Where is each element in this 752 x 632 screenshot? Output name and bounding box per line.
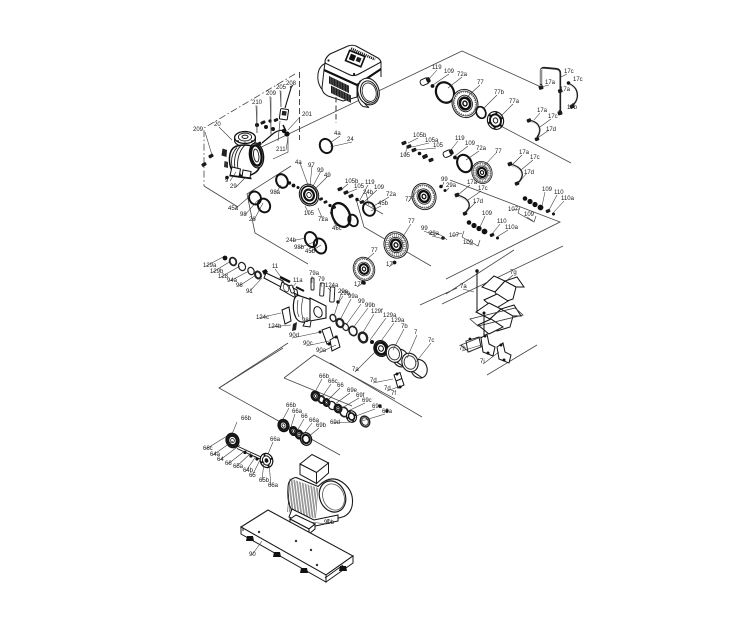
svg-text:109: 109 [482,211,493,217]
svg-text:209: 209 [266,91,277,97]
svg-text:211: 211 [276,147,286,153]
svg-text:69b: 69b [316,423,327,429]
svg-text:77: 77 [408,219,415,225]
svg-text:90d: 90d [289,333,299,339]
svg-text:77a: 77a [509,99,520,105]
svg-text:17c: 17c [530,155,540,161]
svg-text:11: 11 [272,264,279,270]
svg-text:17a: 17a [560,87,571,93]
svg-text:66: 66 [301,414,308,420]
svg-text:110a: 110a [505,225,519,231]
svg-text:90b: 90b [324,520,335,526]
svg-text:124b: 124b [268,324,282,330]
svg-text:77: 77 [495,149,502,155]
svg-text:77: 77 [371,248,378,254]
svg-text:17a: 17a [537,108,548,114]
svg-text:72a: 72a [457,72,468,78]
svg-text:66a: 66a [270,437,281,443]
svg-text:109: 109 [524,212,535,218]
svg-text:129f: 129f [371,309,383,315]
svg-text:208: 208 [286,81,297,87]
svg-text:91: 91 [246,289,253,295]
svg-text:17: 17 [386,262,393,268]
svg-text:17a: 17a [545,80,556,86]
svg-text:7b: 7b [401,324,408,330]
svg-text:7c: 7c [428,338,434,344]
svg-text:17a: 17a [519,150,530,156]
svg-text:7f: 7f [391,391,396,397]
svg-text:17b: 17b [567,105,578,111]
svg-text:98a: 98a [270,190,281,196]
svg-text:90: 90 [249,552,256,558]
svg-text:77: 77 [477,80,484,86]
svg-text:110a: 110a [561,196,575,202]
svg-text:17a: 17a [467,180,478,186]
svg-text:66a: 66a [268,483,279,489]
svg-text:7i: 7i [480,359,485,365]
svg-text:66: 66 [225,461,232,467]
svg-text:11a: 11a [293,278,303,284]
svg-text:66: 66 [337,383,344,389]
svg-text:109: 109 [465,141,476,147]
svg-text:124a: 124a [325,283,339,289]
svg-text:90a: 90a [316,348,327,354]
svg-text:65: 65 [249,473,256,479]
svg-text:109: 109 [542,187,553,193]
svg-text:17c: 17c [478,186,488,192]
svg-text:20: 20 [214,122,221,128]
svg-text:4a: 4a [295,160,302,166]
svg-text:17d: 17d [546,127,556,133]
svg-text:109: 109 [374,185,385,191]
svg-text:201: 201 [302,112,313,118]
svg-text:17d: 17d [473,199,483,205]
svg-text:66b: 66b [241,416,252,422]
svg-text:17c: 17c [573,77,583,83]
svg-text:29a: 29a [446,183,457,189]
svg-text:7g: 7g [510,270,517,276]
svg-text:119: 119 [455,136,465,142]
svg-text:72a: 72a [318,217,329,223]
svg-text:4a: 4a [334,131,341,137]
svg-text:105: 105 [304,211,315,217]
svg-text:210: 210 [252,100,263,106]
svg-text:109: 109 [444,69,455,75]
svg-text:17c: 17c [548,114,558,120]
svg-text:98: 98 [240,212,247,218]
svg-text:209: 209 [193,127,204,133]
svg-text:109: 109 [463,240,474,246]
svg-text:90c: 90c [303,341,313,347]
svg-text:69c: 69c [362,398,372,404]
svg-text:119: 119 [432,65,442,71]
svg-text:7a: 7a [352,367,359,373]
svg-text:45b: 45b [378,201,389,207]
svg-text:72a: 72a [386,192,397,198]
svg-text:17c: 17c [564,69,574,75]
svg-text:72a: 72a [476,146,487,152]
svg-text:69a: 69a [382,409,393,415]
svg-text:77b: 77b [494,90,505,96]
